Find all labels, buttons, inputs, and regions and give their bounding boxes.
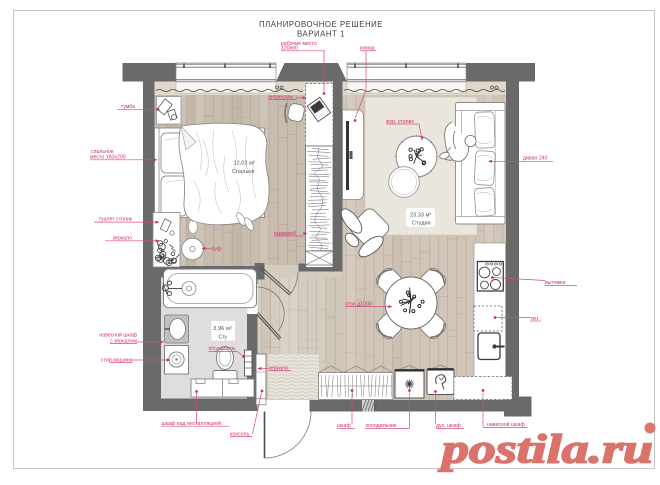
svg-text:С/у: С/у <box>219 334 228 340</box>
svg-text:ВАРИАНТ 1: ВАРИАНТ 1 <box>297 30 345 39</box>
svg-text:12,02 м²: 12,02 м² <box>234 161 255 167</box>
svg-text:Спальня: Спальня <box>232 169 254 175</box>
svg-text:шкаф над инсталляцией: шкаф над инсталляцией <box>162 420 222 427</box>
svg-text:23,33 м²: 23,33 м² <box>410 213 431 219</box>
svg-text:диван 240: диван 240 <box>523 155 548 161</box>
svg-text:ПЛАНИРОВОЧНОЕ РЕШЕНИЕ: ПЛАНИРОВОЧНОЕ РЕШЕНИЕ <box>259 20 383 29</box>
svg-text:Студия: Студия <box>412 221 431 227</box>
svg-text:пуф: пуф <box>212 247 222 253</box>
svg-text:postila.ru: postila.ru <box>438 426 653 472</box>
svg-text:3,96 м²: 3,96 м² <box>213 326 232 332</box>
